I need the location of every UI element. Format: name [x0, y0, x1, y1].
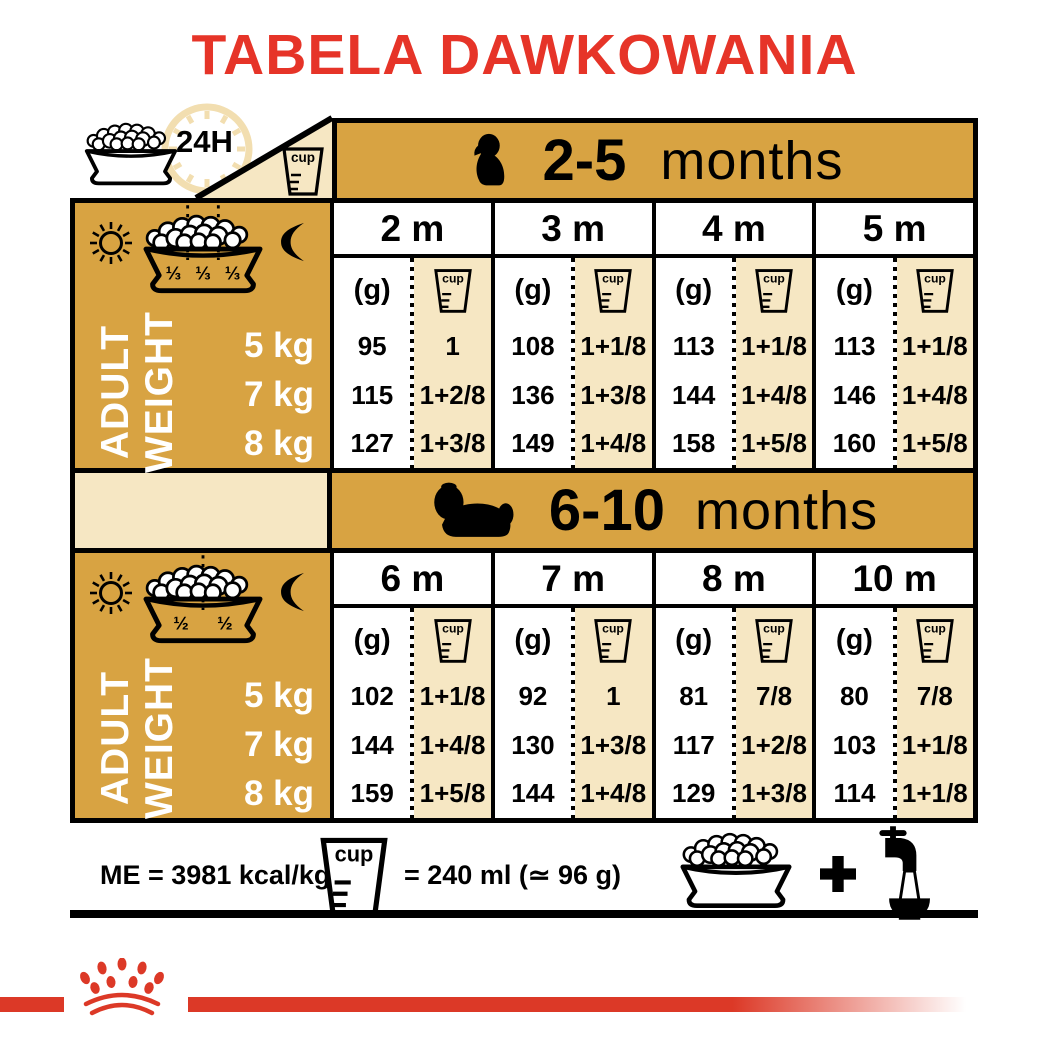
- grams-subcolumn: (g) 81 117 129: [656, 608, 732, 818]
- age-range: 6-10: [549, 477, 665, 544]
- age-range: 2-5: [543, 127, 627, 194]
- grams-value: 115: [334, 371, 410, 420]
- header-spacer-block: [75, 473, 332, 548]
- grams-subcolumn: (g) 92 130 144: [495, 608, 571, 818]
- measuring-cup-icon: cup: [281, 145, 325, 197]
- grams-value: 129: [656, 769, 732, 818]
- month-column: 8 m (g) 81 117 129 cup: [652, 553, 813, 818]
- cup-subcolumn: cup 1 1+3/8 1+4/8: [575, 608, 651, 818]
- grams-subcolumn: (g) 113 144 158: [656, 258, 732, 468]
- cup-value: 1+1/8: [736, 322, 812, 371]
- cup-value: 1+4/8: [897, 371, 973, 420]
- grams-subcolumn: (g) 102 144 159: [334, 608, 410, 818]
- cup-value: 1+4/8: [575, 419, 651, 468]
- svg-text:cup: cup: [291, 150, 315, 165]
- plus-icon: [820, 856, 856, 892]
- cup-value: 7/8: [897, 672, 973, 721]
- section-header-2-5-months: 2-5 months: [332, 118, 978, 198]
- grams-unit-label: (g): [334, 258, 410, 322]
- moon-icon: [279, 571, 306, 613]
- svg-text:cup: cup: [442, 621, 464, 635]
- cup-value: 1+1/8: [575, 322, 651, 371]
- weight-label: 7 kg: [244, 725, 314, 765]
- grams-value: 95: [334, 322, 410, 371]
- cup-value: 1+5/8: [736, 419, 812, 468]
- cup-subcolumn: cup 1+1/8 1+4/8 1+5/8: [897, 258, 973, 468]
- svg-text:cup: cup: [763, 271, 785, 285]
- grams-value: 160: [816, 419, 892, 468]
- puppy-icon: [467, 133, 509, 189]
- svg-text:cup: cup: [924, 621, 946, 635]
- month-header: 5 m: [816, 203, 973, 258]
- grams-unit-label: (g): [495, 608, 571, 672]
- cup-icon-cell: cup: [897, 608, 973, 672]
- cup-value: 1+5/8: [897, 419, 973, 468]
- grams-value: 113: [656, 322, 732, 371]
- cup-value: 1+5/8: [414, 769, 490, 818]
- cup-value: 1: [575, 672, 651, 721]
- age-unit: months: [660, 130, 843, 192]
- adult-dog-icon: [427, 480, 519, 542]
- month-columns: 6 m (g) 102 144 159 cup: [330, 553, 973, 818]
- grams-subcolumn: (g) 80 103 114: [816, 608, 892, 818]
- grams-unit-label: (g): [816, 608, 892, 672]
- brand-band-right: [188, 997, 966, 1012]
- metabolizable-energy-label: ME = 3981 kcal/kg: [100, 860, 330, 891]
- measuring-cup-icon: cup: [593, 267, 633, 314]
- measuring-cup-icon: cup: [915, 617, 955, 664]
- svg-text:cup: cup: [335, 841, 374, 866]
- month-header: 3 m: [495, 203, 652, 258]
- month-columns: 2 m (g) 95 115 127 cup: [330, 203, 973, 468]
- weight-label: 7 kg: [244, 375, 314, 415]
- svg-text:cup: cup: [924, 271, 946, 285]
- grams-subcolumn: (g) 108 136 149: [495, 258, 571, 468]
- cup-icon-cell: cup: [414, 608, 490, 672]
- month-column: 4 m (g) 113 144 158 cup: [652, 203, 813, 468]
- grams-unit-label: (g): [816, 258, 892, 322]
- cup-subcolumn: cup 1 1+2/8 1+3/8: [414, 258, 490, 468]
- measuring-cup-icon: cup: [318, 834, 390, 918]
- cup-value: 1+3/8: [736, 769, 812, 818]
- month-header: 2 m: [334, 203, 491, 258]
- cup-icon-cell: cup: [414, 258, 490, 322]
- svg-text:½: ½: [173, 613, 189, 634]
- table-sidebar: ⅓ ⅓ ⅓ 5 kg 7 kg 8 kg ADULT WEIGHT: [75, 203, 330, 468]
- month-header: 4 m: [656, 203, 813, 258]
- month-column: 10 m (g) 80 103 114 cup: [812, 553, 973, 818]
- adult-label: ADULT: [93, 653, 139, 823]
- month-column: 6 m (g) 102 144 159 cup: [330, 553, 491, 818]
- measuring-cup-icon: cup: [915, 267, 955, 314]
- section-header-content: 6-10 months: [332, 473, 973, 548]
- cup-value: 1+1/8: [897, 769, 973, 818]
- grams-value: 144: [495, 769, 571, 818]
- cup-value: 1+3/8: [414, 419, 490, 468]
- month-header: 7 m: [495, 553, 652, 608]
- adult-label: ADULT: [93, 307, 139, 477]
- cup-icon-cell: cup: [575, 608, 651, 672]
- food-bowl-icon: [80, 114, 182, 200]
- cup-value: 1: [414, 322, 490, 371]
- crown-logo: [78, 958, 166, 1020]
- measuring-cup-icon: cup: [754, 267, 794, 314]
- grams-value: 158: [656, 419, 732, 468]
- moon-icon: [279, 221, 306, 263]
- weight-label: 5 kg: [244, 326, 314, 366]
- grams-unit-label: (g): [334, 608, 410, 672]
- grams-value: 102: [334, 672, 410, 721]
- cup-value: 1+4/8: [736, 371, 812, 420]
- weight-label: 5 kg: [244, 676, 314, 716]
- bowl-halves-icon: ½ ½: [137, 553, 269, 667]
- grams-value: 127: [334, 419, 410, 468]
- cup-value: 1+2/8: [414, 371, 490, 420]
- feeding-table-6-10-months: ½ ½ 5 kg 7 kg 8 kg ADULT WEIGHT 6 m (g: [70, 553, 978, 823]
- food-bowl-icon: [660, 830, 812, 918]
- grams-unit-label: (g): [495, 258, 571, 322]
- month-column: 3 m (g) 108 136 149 cup: [491, 203, 652, 468]
- month-header: 8 m: [656, 553, 813, 608]
- svg-text:⅓: ⅓: [225, 263, 241, 284]
- weight-axis-label: WEIGHT: [137, 653, 183, 823]
- svg-text:cup: cup: [602, 621, 624, 635]
- cup-value: 1+3/8: [575, 721, 651, 770]
- cup-subcolumn: cup 7/8 1+1/8 1+1/8: [897, 608, 973, 818]
- cup-value: 1+4/8: [414, 721, 490, 770]
- sun-icon: [87, 569, 135, 617]
- grams-value: 114: [816, 769, 892, 818]
- svg-text:⅓: ⅓: [166, 263, 182, 284]
- grams-value: 149: [495, 419, 571, 468]
- cup-value: 1+2/8: [736, 721, 812, 770]
- grams-value: 146: [816, 371, 892, 420]
- weight-label: 8 kg: [244, 774, 314, 814]
- grams-unit-label: (g): [656, 608, 732, 672]
- month-column: 5 m (g) 113 146 160 cup: [812, 203, 973, 468]
- cup-subcolumn: cup 1+1/8 1+4/8 1+5/8: [736, 258, 812, 468]
- svg-text:cup: cup: [602, 271, 624, 285]
- grams-value: 136: [495, 371, 571, 420]
- cup-subcolumn: cup 1+1/8 1+4/8 1+5/8: [414, 608, 490, 818]
- water-tap-icon: [856, 826, 930, 920]
- table-sidebar: ½ ½ 5 kg 7 kg 8 kg ADULT WEIGHT: [75, 553, 330, 818]
- cup-value: 7/8: [736, 672, 812, 721]
- weight-label: 8 kg: [244, 424, 314, 464]
- grams-subcolumn: (g) 95 115 127: [334, 258, 410, 468]
- cup-value: 1+4/8: [575, 769, 651, 818]
- page-title: TABELA DAWKOWANIA: [0, 22, 1049, 88]
- grams-value: 108: [495, 322, 571, 371]
- grams-unit-label: (g): [656, 258, 732, 322]
- measuring-cup-icon: cup: [433, 617, 473, 664]
- month-column: 7 m (g) 92 130 144 cup: [491, 553, 652, 818]
- measuring-cup-icon: cup: [433, 267, 473, 314]
- weight-axis-label: WEIGHT: [137, 307, 183, 477]
- month-column: 2 m (g) 95 115 127 cup: [330, 203, 491, 468]
- grams-subcolumn: (g) 113 146 160: [816, 258, 892, 468]
- bowl-thirds-icon: ⅓ ⅓ ⅓: [137, 203, 269, 317]
- feeding-table-2-5-months: ⅓ ⅓ ⅓ 5 kg 7 kg 8 kg ADULT WEIGHT 2 m: [70, 198, 978, 473]
- cup-value: 1+3/8: [575, 371, 651, 420]
- cup-equivalence-label: = 240 ml (≃ 96 g): [404, 860, 621, 891]
- grams-value: 92: [495, 672, 571, 721]
- month-header: 10 m: [816, 553, 973, 608]
- sun-icon: [87, 219, 135, 267]
- svg-text:⅓: ⅓: [195, 263, 211, 284]
- svg-text:cup: cup: [442, 271, 464, 285]
- cup-icon-cell: cup: [897, 258, 973, 322]
- cup-subcolumn: cup 1+1/8 1+3/8 1+4/8: [575, 258, 651, 468]
- grams-value: 80: [816, 672, 892, 721]
- cup-value: 1+1/8: [897, 721, 973, 770]
- measuring-cup-icon: cup: [593, 617, 633, 664]
- grams-value: 159: [334, 769, 410, 818]
- dosage-table-page: TABELA DAWKOWANIA 24H cup: [0, 0, 1049, 1049]
- cup-subcolumn: cup 7/8 1+2/8 1+3/8: [736, 608, 812, 818]
- footer-divider-rule: [70, 910, 978, 918]
- sidebar-icons: ⅓ ⅓ ⅓: [75, 203, 330, 322]
- svg-text:cup: cup: [763, 621, 785, 635]
- section-header-6-10-months: 6-10 months: [70, 473, 978, 553]
- grams-value: 81: [656, 672, 732, 721]
- grams-value: 113: [816, 322, 892, 371]
- grams-value: 117: [656, 721, 732, 770]
- grams-value: 103: [816, 721, 892, 770]
- grams-value: 144: [334, 721, 410, 770]
- measuring-cup-icon: cup: [754, 617, 794, 664]
- cup-icon-cell: cup: [736, 608, 812, 672]
- brand-band-left: [0, 997, 64, 1012]
- grams-value: 144: [656, 371, 732, 420]
- cup-value: 1+1/8: [897, 322, 973, 371]
- svg-text:½: ½: [217, 613, 233, 634]
- cup-icon-cell: cup: [575, 258, 651, 322]
- month-header: 6 m: [334, 553, 491, 608]
- cup-icon-cell: cup: [736, 258, 812, 322]
- age-unit: months: [695, 480, 878, 542]
- cup-value: 1+1/8: [414, 672, 490, 721]
- grams-value: 130: [495, 721, 571, 770]
